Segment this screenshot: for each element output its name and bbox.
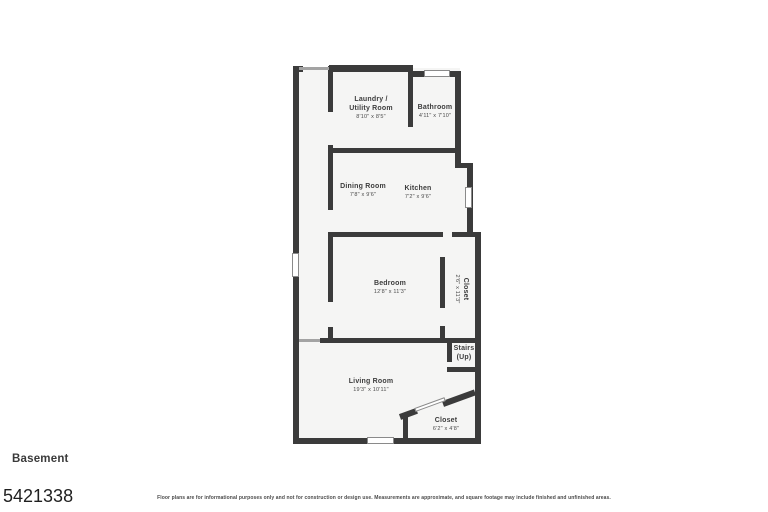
room-name: Kitchen — [388, 184, 448, 193]
window-marker — [424, 70, 450, 77]
room-label-living: Living Room 19'3" x 10'11" — [321, 377, 421, 393]
wall-segment — [403, 415, 408, 443]
wall-segment — [328, 145, 333, 210]
wall-segment — [320, 338, 480, 343]
floor-area-upper — [295, 68, 460, 238]
room-label-bedroom: Bedroom 12'8" x 11'3" — [331, 279, 449, 295]
wall-segment — [452, 232, 467, 237]
room-dimensions: 7'2" x 9'6" — [388, 194, 448, 200]
room-dimensions: 19'3" x 10'11" — [321, 387, 421, 393]
room-name: Bedroom — [331, 279, 449, 288]
room-name: Closet — [461, 264, 470, 314]
wall-segment — [328, 148, 460, 153]
room-name: Bathroom — [404, 103, 466, 112]
window-marker — [292, 253, 299, 277]
wall-segment — [447, 367, 480, 372]
floor-plan-drawing: Laundry / Utility Room 8'10" x 8'5" Bath… — [0, 0, 768, 512]
wall-segment — [455, 71, 461, 168]
level-title: Basement — [12, 453, 69, 465]
window-marker — [299, 67, 329, 70]
room-dimensions: 4'11" x 7'10" — [404, 113, 466, 119]
room-label-kitchen: Kitchen 7'2" x 9'6" — [388, 184, 448, 200]
window-marker — [367, 437, 394, 444]
room-dimensions: 12'8" x 11'3" — [331, 289, 449, 295]
room-label-closet-lower: Closet 6'2" x 4'8" — [417, 416, 475, 432]
disclaimer-text: Floor plans are for informational purpos… — [0, 495, 768, 501]
room-name: Living Room — [321, 377, 421, 386]
room-label-closet-hall: Closet 2'6" x 11'3" — [454, 264, 470, 314]
room-dimensions: 6'2" x 4'8" — [417, 426, 475, 432]
room-label-bathroom: Bathroom 4'11" x 7'10" — [404, 103, 466, 119]
wall-segment — [293, 277, 299, 443]
wall-segment — [329, 65, 413, 72]
floor-plan-page: Laundry / Utility Room 8'10" x 8'5" Bath… — [0, 0, 768, 512]
room-label-stairs: Stairs (Up) — [449, 344, 479, 362]
wall-segment — [328, 232, 443, 237]
wall-segment — [293, 66, 299, 253]
window-marker — [299, 339, 320, 342]
window-marker — [465, 187, 472, 208]
room-name: Stairs (Up) — [449, 344, 479, 362]
room-name: Closet — [417, 416, 475, 425]
room-dimensions: 2'6" x 11'3" — [454, 264, 460, 314]
